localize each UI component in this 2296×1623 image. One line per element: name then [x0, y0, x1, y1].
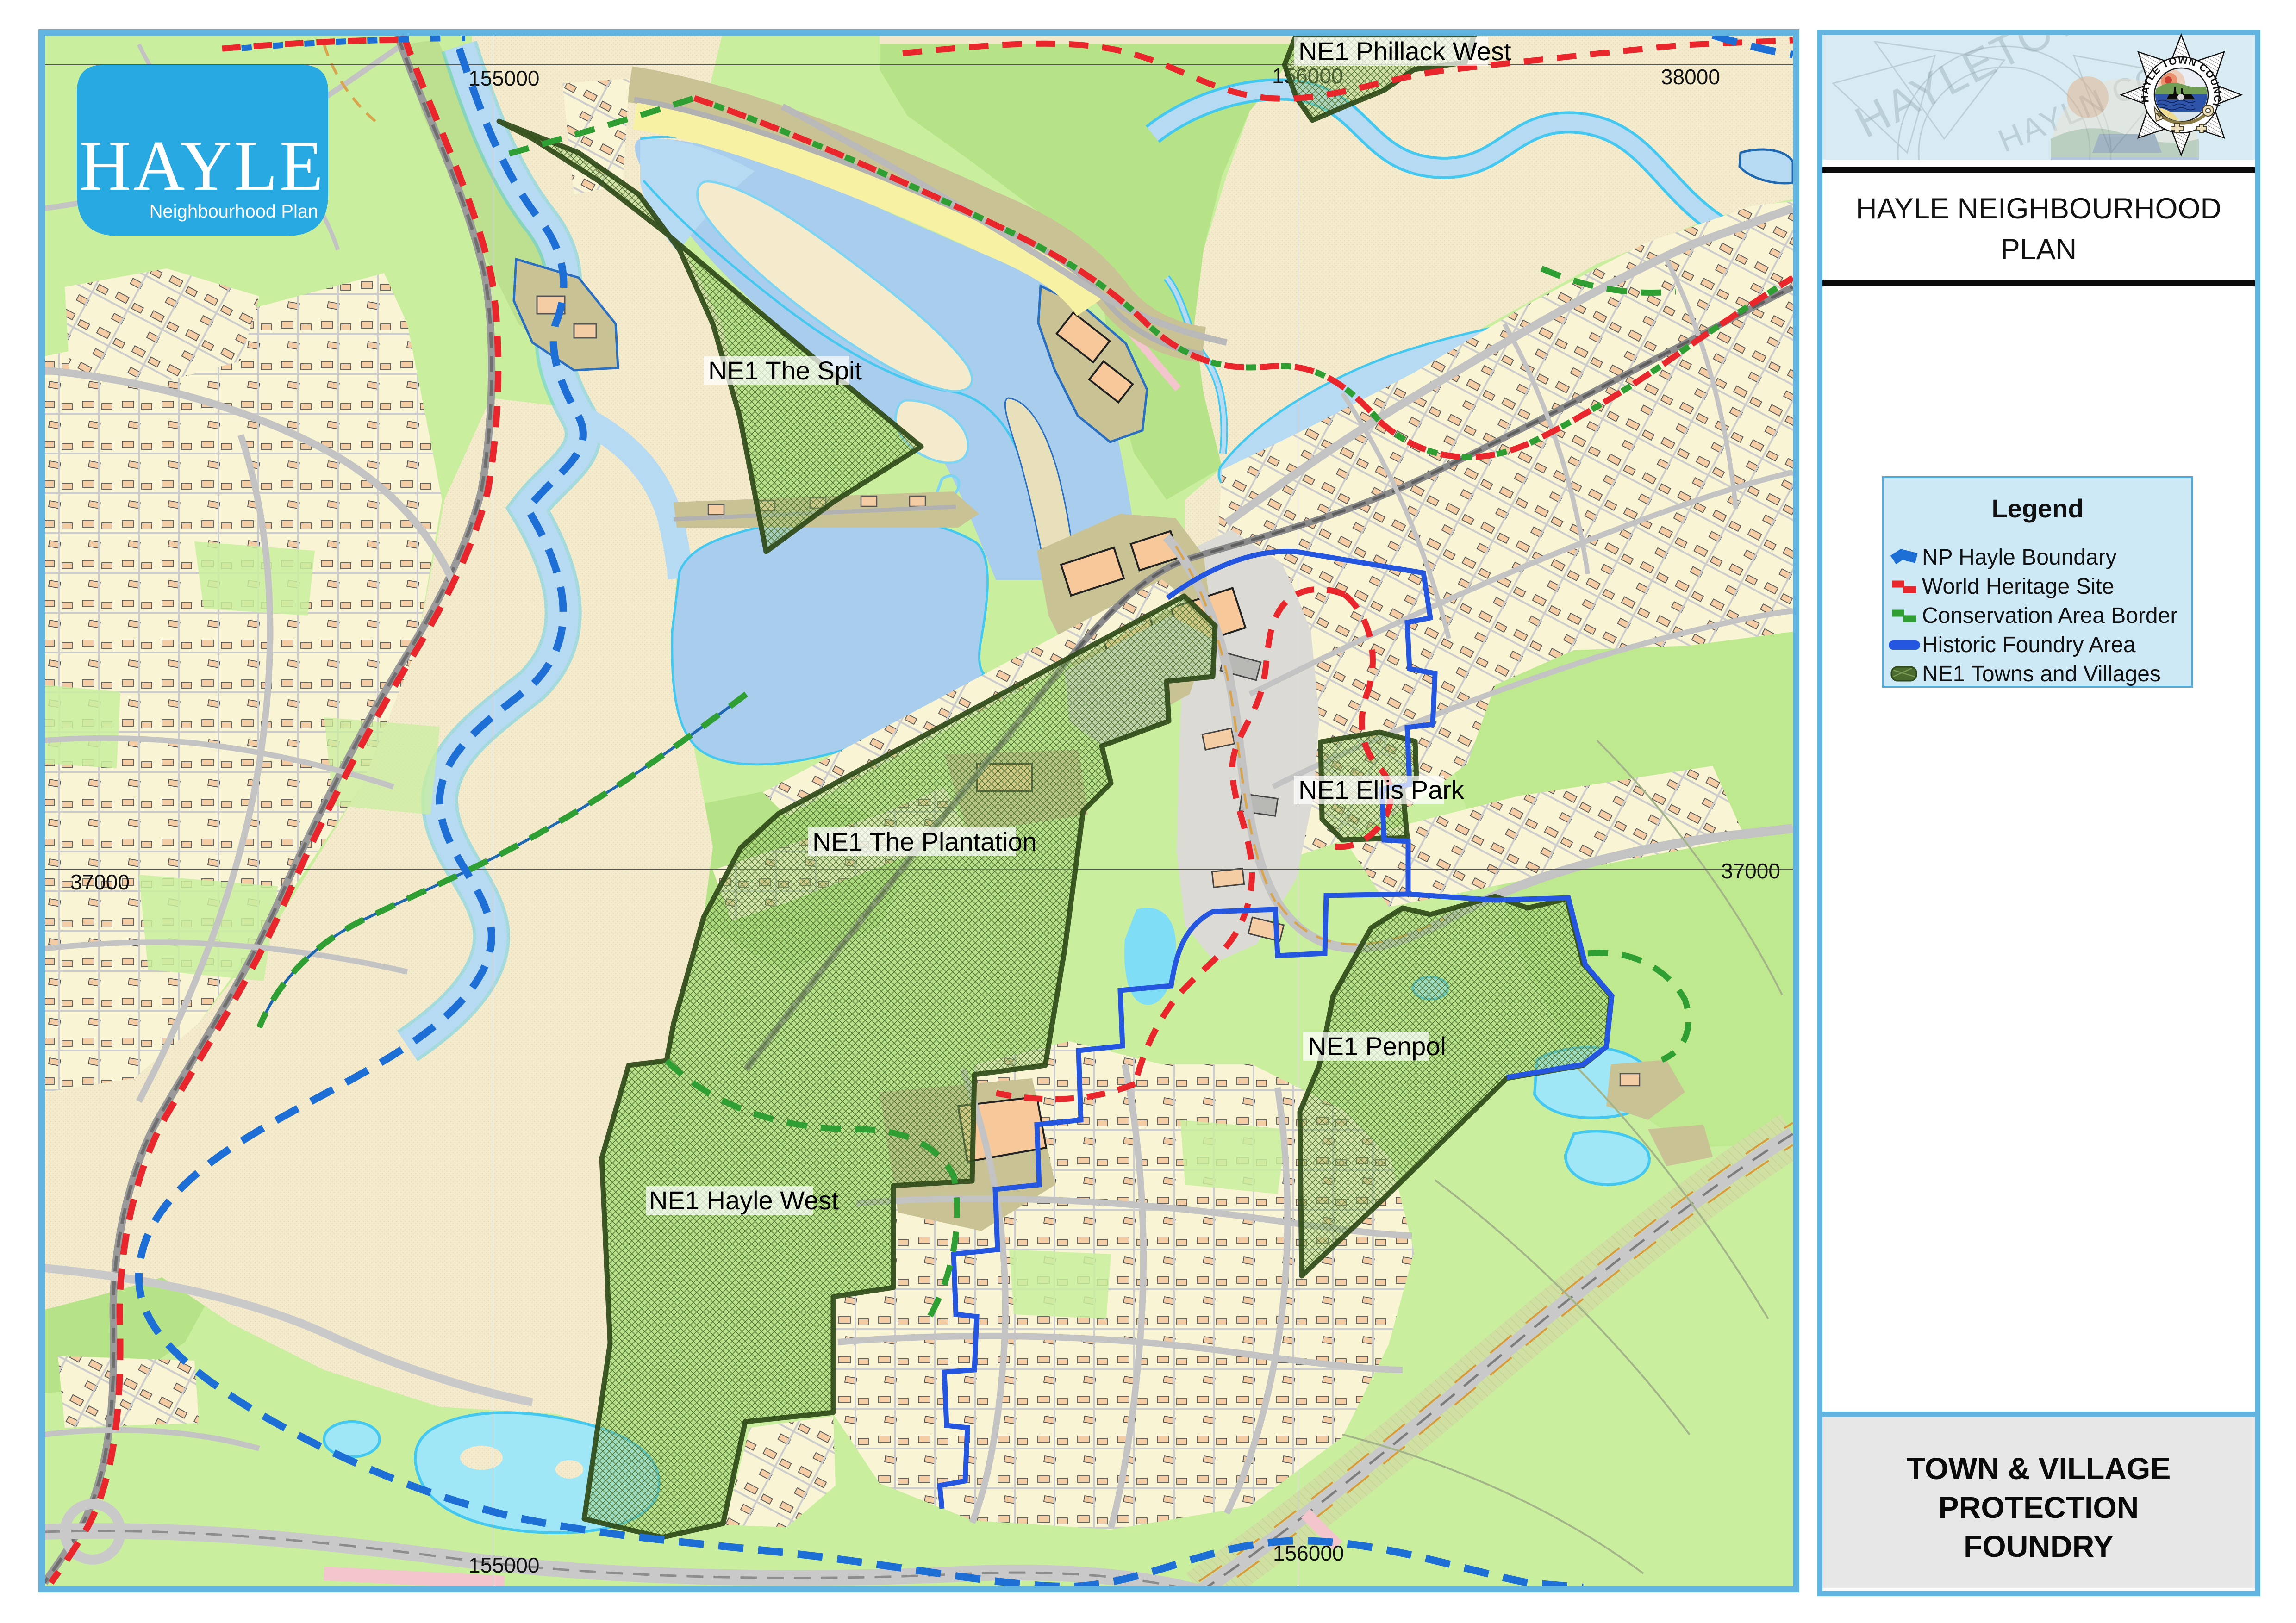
- svg-text:155000: 155000: [468, 1553, 540, 1577]
- svg-text:Conservation Area Border: Conservation Area Border: [1922, 603, 2177, 628]
- svg-text:World Heritage Site: World Heritage Site: [1922, 574, 2114, 599]
- svg-text:HAYLE NEIGHBOURHOOD: HAYLE NEIGHBOURHOOD: [1856, 193, 2221, 225]
- svg-text:NE1 Hayle West: NE1 Hayle West: [649, 1186, 839, 1215]
- svg-text:NE1 Penpol: NE1 Penpol: [1308, 1032, 1446, 1061]
- svg-text:PROTECTION: PROTECTION: [1939, 1490, 2139, 1524]
- svg-text:NE1 Phillack West: NE1 Phillack West: [1298, 37, 1511, 66]
- svg-text:NP Hayle Boundary: NP Hayle Boundary: [1922, 545, 2117, 570]
- svg-text:38000: 38000: [1661, 65, 1720, 89]
- svg-text:FOUNDRY: FOUNDRY: [1964, 1529, 2114, 1563]
- svg-text:37000: 37000: [1721, 859, 1780, 883]
- svg-text:Neighbourhood Plan: Neighbourhood Plan: [150, 201, 318, 222]
- svg-text:NE1 The Plantation: NE1 The Plantation: [812, 827, 1037, 856]
- svg-text:Legend: Legend: [1991, 494, 2084, 523]
- svg-text:37000: 37000: [70, 870, 130, 894]
- svg-text:NE1 Towns and Villages: NE1 Towns and Villages: [1922, 662, 2161, 686]
- svg-text:Historic Foundry Area: Historic Foundry Area: [1922, 633, 2136, 657]
- svg-text:NE1 Ellis Park: NE1 Ellis Park: [1298, 775, 1465, 804]
- svg-text:155000: 155000: [468, 66, 540, 90]
- svg-text:TOWN & VILLAGE: TOWN & VILLAGE: [1907, 1451, 2171, 1486]
- svg-text:NE1 The Spit: NE1 The Spit: [708, 356, 862, 385]
- svg-text:HAYLE: HAYLE: [80, 126, 325, 205]
- svg-text:PLAN: PLAN: [2001, 233, 2077, 266]
